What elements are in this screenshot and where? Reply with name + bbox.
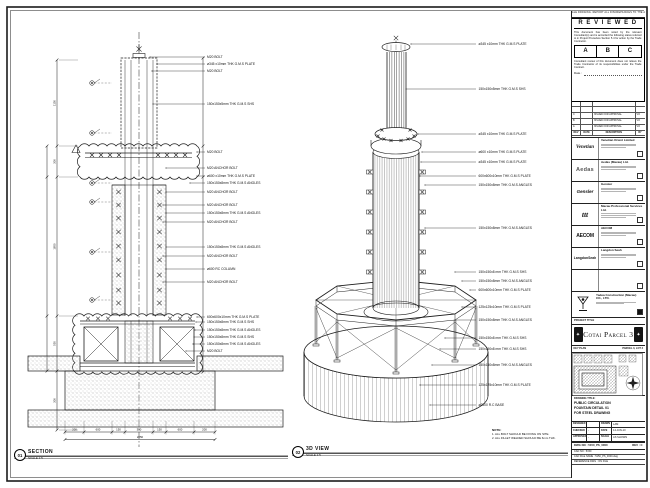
annotation-label: M20 ANCHOR BOLT [207,166,238,170]
detail-bubble: 01 [14,449,26,461]
drawing-title-label: DRAWING TITLE: [574,397,643,400]
annotation-label: ø2500 R.C BASE [479,403,505,407]
drawing-title-line-1: PUBLIC CIRCULATION [574,401,643,405]
title-block-filler [572,465,645,478]
company-name: Gensler [601,183,643,187]
rev-letter: B [572,119,581,124]
annotation-label: 2250 [137,435,144,439]
rev-by: VO [636,113,645,118]
company-name: Langdon Seah [601,249,643,253]
banner-ornament-right: ✦ [634,327,643,342]
company-checkbox [637,261,643,267]
annotation-label: 150x150x8mm THK G.M.S SHS [207,320,255,324]
annotation-label: 150 [116,427,121,431]
reviewed-paragraph-2: Consultant review of this document does … [574,60,642,69]
annotation-label: 1150 [53,100,57,106]
dwg-number-row: DWG NO : 5150_PS_0000 REV : C [572,443,645,450]
3d-view-marker: 02 3D VIEW SCALE 1:5 [292,446,329,458]
annotation-label: ø345 x10mm THK G.M.S PLATE [479,132,528,136]
rev-by: VO [636,125,645,130]
annotation-label: M20 ANCHOR BOLT [207,203,238,207]
field-value: - [587,435,600,441]
annotation-label: ø345 x10mm THK G.M.S PLATE [479,42,528,46]
company-checkbox [637,239,643,245]
annotation-label: 150x150x8mm THK G.M.S ANGLES [479,363,533,367]
field-label: DRAWN [600,422,612,428]
annotation-label: 125x125x10mm THK G.M.S PLATE [479,305,532,309]
field-value: 14-JUN-10 [612,428,645,434]
drawing-title-block: DRAWING TITLE: PUBLIC CIRCULATION FOUNTA… [572,396,645,422]
annotation-label: M20 ANCHOR BOLT [207,280,238,284]
project-title-banner: ✦ Cotai Parcel 3 ✦ [572,325,645,346]
annotation-label: 150 [157,427,162,431]
annotation-label: M20 BOLT [207,349,223,353]
company-row-aedas: Aedas Aedas (Macau) Ltd. [572,160,645,182]
field-label: SCALE [600,435,612,441]
annotation-label: 200 [202,427,207,431]
rev-description: ISSUED FOR APPROVAL [593,113,636,118]
field-value: - [587,428,600,434]
field-label: CHECKED [572,428,587,434]
company-checkbox [637,283,643,289]
rev-letter: C [572,113,581,118]
annotation-label: 150x150x5mm THK G.M.S SHS [479,87,527,91]
annotation-label: M20 BOLT [207,55,223,59]
annotation-label: 550 [53,341,57,346]
key-plan-label: KEY PLAN [574,347,587,350]
rev-description: ISSUED FOR APPROVAL [593,119,636,124]
key-plan-area: PARCEL 3, LOT 2 [622,347,643,350]
status-options: A B C [574,45,642,58]
contractor-marker [637,309,643,315]
annotation-label: 125x125x10mm THK G.M.S PLATE [479,383,532,387]
rev-col-header: BY [636,131,645,136]
note-line-2: 2. ALL FILLET WELDED SHOULD BE 6mm THK. [492,437,570,441]
reviewed-title: R E V I E W E D [574,20,642,29]
sheet-notice-strip: DO NOT SCALE DRAWING. REPORT ALL DISCREP… [572,11,645,18]
annotation-label: M20 ANCHOR BOLT [207,190,238,194]
revision-header-row: REV DATE DESCRIPTION BY [572,131,645,137]
annotation-label: 150x150x8mm THK G.M.S ANGLES [479,279,533,283]
annotation-label: 150x150x8mm THK G.M.S ANGLES [207,245,261,249]
rev-letter: A [572,125,581,130]
contractor-name: Yadea Construction (Macau) CO., LTD. [596,294,643,301]
reviewed-paragraph-1: This document has been noted by the rele… [574,31,642,43]
company-row-macau-professional: ttt Macau Professional Services Ltd. [572,204,645,226]
annotation-label: 150x150x8mm THK G.M.S ANGLES [207,181,261,185]
3d-view-scale: SCALE 1:5 [306,453,329,457]
rev-col-header: DATE [581,131,593,136]
project-title-label: PROJECT TITLE [572,318,645,325]
annotation-label: 150x150x8mm THK G.M.S ANGLES [479,183,533,187]
company-row-langdon-seah: LangdonSeah Langdon Seah [572,248,645,270]
venetian-logo: Venetian [572,138,599,159]
gensler-logo: Gensler [572,182,599,203]
company-row-gensler: Gensler Gensler [572,182,645,204]
section-view-label: SECTION [28,449,53,455]
revision-table: C ISSUED FOR APPROVAL VO B ISSUED FOR AP… [572,102,645,138]
rev-col-header: DESCRIPTION [593,131,636,136]
annotation-label: M20 BOLT [207,69,223,73]
annotation-label: ø345 x10mm THK G.M.S PLATE [479,160,528,164]
status-option-b: B [597,46,619,57]
annotation-label: ø345 x10mm THK G.M.S PLATE [207,62,256,66]
status-option-a: A [575,46,597,57]
company-checkbox [637,173,643,179]
section-view-marker: 01 SECTION SCALE 1:5 [14,449,53,461]
title-block: DO NOT SCALE DRAWING. REPORT ALL DISCREP… [571,11,645,478]
rev-date [581,125,593,130]
annotation-label: M20 ANCHOR BOLT [207,254,238,258]
annotation-label: ø600 x10mm THK G.M.S PLATE [479,150,528,154]
general-notes: NOTE: 1. ALL BOLT SHOULD BE FIXING ON SI… [492,428,570,441]
detail-bubble: 02 [292,446,304,458]
key-plan-map [572,353,643,396]
rev-description: ISSUED FOR APPROVAL [593,125,636,130]
reviewed-date-row: Date : [574,71,642,76]
field-label: DATE [600,428,612,434]
empty-logo [572,270,599,291]
annotation-label: 600 [96,427,101,431]
annotation-label: 150x150x8mm THK G.M.S ANGLES [479,318,533,322]
aedas-logo: Aedas [572,160,599,181]
contractor-block: Yadea Construction (Macau) CO., LTD. [572,292,645,318]
company-row-aecom: AECOM AECOM [572,226,645,248]
annotation-label: 150x150x8mm THK G.M.S ANGLES [207,211,261,215]
annotation-label: 600x600x10mm THK G.M.S PLATE [207,315,260,319]
field-value: LAM [612,422,645,428]
field-value: AS SHOWN [612,435,645,441]
annotation-label: 150x150x8mm THK G.M.S ANGLES [207,342,261,346]
rev-date [581,119,593,124]
rev-number: REV : C [632,444,642,447]
signature-fields: DESIGNED DRAWN LAM CHECKED - DATE 14-JUN… [572,422,645,443]
annotation-label: 300 [53,398,57,403]
drawing-sheet: 2006001503501506002002250115030018505503… [0,0,650,488]
company-name: Venetian Orient Limited [601,139,643,143]
field-value [587,422,600,428]
rev-date [581,113,593,118]
annotation-label: ø600 x10mm THK G.M.S PLATE [207,174,256,178]
date-blank-line [584,71,641,76]
annotation-label: ø600 RC COLUMN [207,267,236,271]
dwg-number: DWG NO : 5150_PS_0000 [574,444,608,447]
annotation-label: 150x150x8mm THK G.M.S ANGLES [479,226,533,230]
company-name: Aedas (Macau) Ltd. [601,161,643,165]
company-row-venetian: Venetian Venetian Orient Limited [572,138,645,160]
langdon-seah-logo: LangdonSeah [572,248,599,269]
key-plan: KEY PLAN PARCEL 3, LOT 2 [572,346,645,396]
company-row-empty [572,270,645,292]
3d-view-label: 3D VIEW [306,446,329,452]
contractor-logo [572,292,594,317]
aecom-logo: AECOM [572,226,599,247]
company-checkbox [637,195,643,201]
annotation-label: 600x600x10mm THK G.M.S PLATE [479,174,532,178]
drawing-title-line-2: FOUNTAIN DETAIL 01 [574,406,643,410]
annotation-label: M20 BOLT [207,150,223,154]
annotation-label: 1850 [53,243,57,250]
company-name: AECOM [601,227,643,231]
drawing-title-line-3: FOR STEEL DRAWING [574,411,643,415]
project-title: Cotai Parcel 3 [583,330,633,339]
reviewed-stamp: R E V I E W E D This document has been n… [572,18,645,102]
annotation-label: 150x150x8mm THK G.M.S SHS [207,335,255,339]
annotation-label: 150x150x8mm THK G.M.S ANGLES [207,328,261,332]
annotation-label: 200 [72,427,77,431]
annotation-label: 300 [53,159,57,164]
company-checkbox [637,151,643,157]
annotation-label: 350 [137,427,142,431]
annotation-label: 600 [178,427,183,431]
ttt-logo: ttt [572,204,599,225]
banner-ornament-left: ✦ [574,327,583,342]
section-view-scale: SCALE 1:5 [28,456,53,460]
cad-line-work: 2006001503501506002002250115030018505503… [0,0,650,488]
annotation-label: 150x150x5mm THK G.M.S SHS [207,102,255,106]
annotation-label: M20 ANCHOR BOLT [207,220,238,224]
annotation-label: 150x150x8 mm THK G.M.S SHS [479,336,528,340]
rev-by: VO [636,119,645,124]
field-label: DESIGNED [572,422,587,428]
annotation-label: 150x150x8 mm THK G.M.S SHS [479,347,528,351]
date-label: Date : [574,72,582,76]
annotation-label: 600x600x10mm THK G.M.S PLATE [479,288,532,292]
field-label: APPROVED [572,435,587,441]
company-name: Macau Professional Services Ltd. [601,205,643,212]
company-checkbox [637,217,643,223]
annotation-label: 150x150x8 mm THK G.M.S SHS [479,270,528,274]
rev-col-header: REV [572,131,581,136]
status-option-c: C [619,46,640,57]
